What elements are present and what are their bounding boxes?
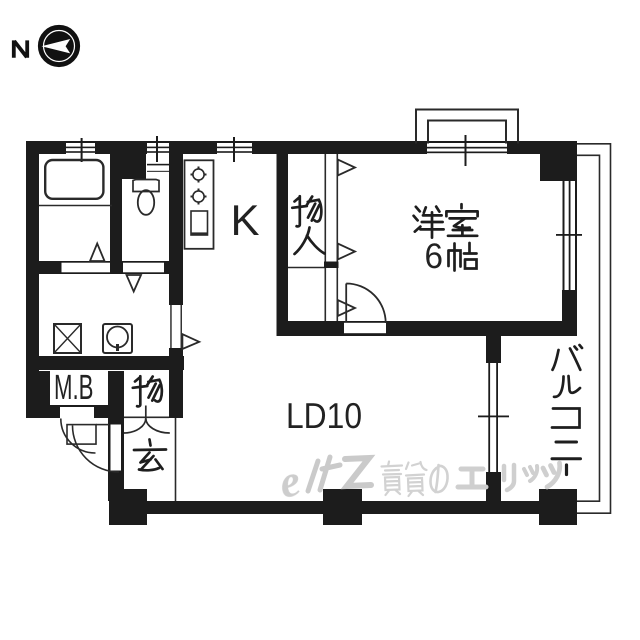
svg-text:K: K	[231, 197, 260, 245]
svg-text:LD10: LD10	[286, 395, 362, 436]
svg-text:6: 6	[425, 236, 444, 276]
svg-text:M.B: M.B	[54, 368, 94, 407]
